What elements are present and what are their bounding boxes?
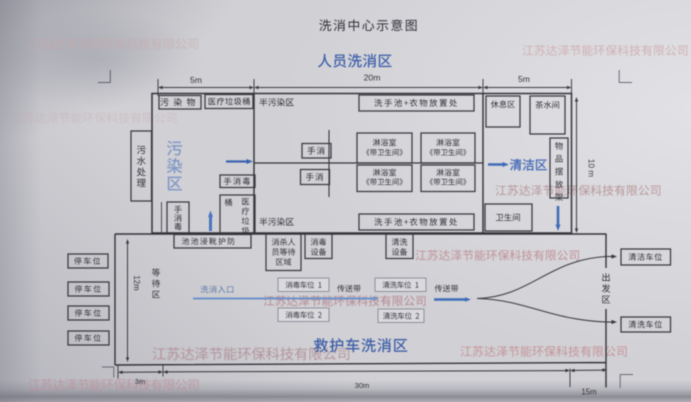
svg-text:5m: 5m — [518, 74, 530, 84]
svg-text:15m: 15m — [581, 388, 596, 397]
svg-text:12m: 12m — [132, 275, 141, 290]
svg-text:5m: 5m — [190, 75, 202, 85]
svg-text:20m: 20m — [364, 73, 381, 83]
svg-text:30m: 30m — [355, 381, 370, 390]
svg-text:10 m: 10 m — [587, 159, 596, 177]
svg-text:3m: 3m — [135, 377, 145, 386]
